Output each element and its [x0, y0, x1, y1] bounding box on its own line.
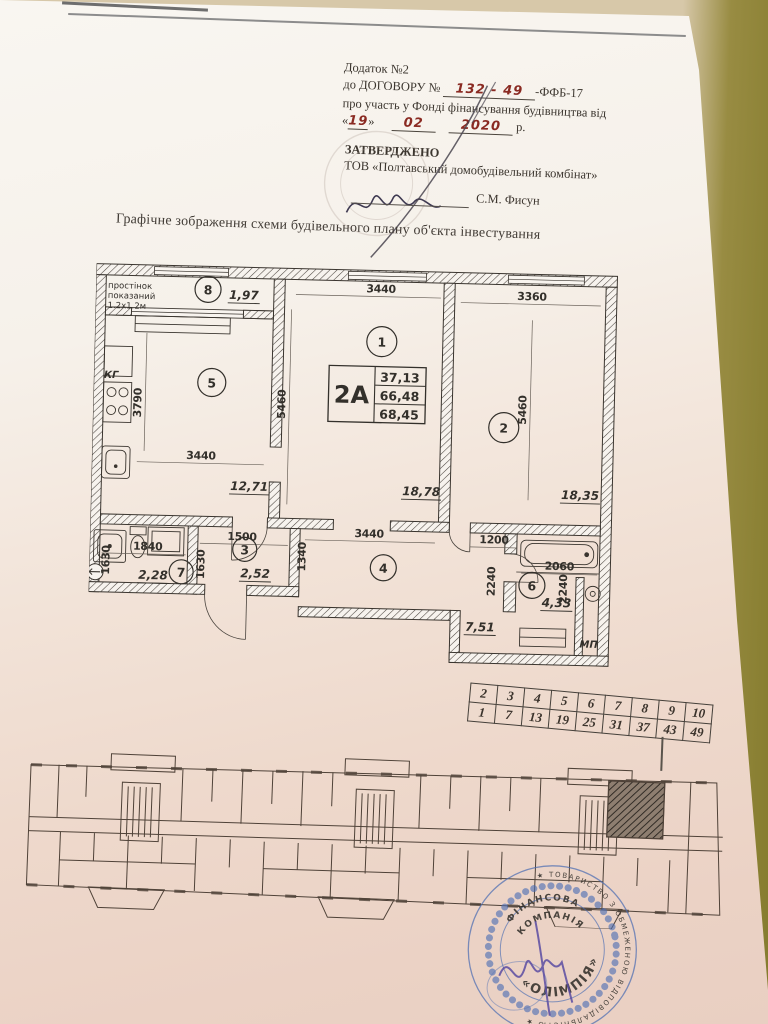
apartment-cell: 43 — [656, 719, 685, 740]
kg-label: КГ — [104, 370, 119, 381]
floor-cell: 8 — [631, 698, 660, 719]
dim-3440-top: 3440 — [366, 282, 396, 296]
note-line3: 1.2х1.2м — [107, 301, 146, 312]
room-4-area: 7,51 — [465, 620, 495, 635]
wall-corridor-bottom — [298, 607, 450, 621]
apartment-info-box: 2А 37,13 66,48 68,45 — [328, 365, 426, 423]
dim-1340: 1340 — [295, 541, 309, 571]
apartment-cell: 37 — [629, 717, 658, 738]
apartment-cell: 49 — [683, 722, 712, 743]
wall-bottom-right — [449, 652, 608, 666]
room-3-area: 2,52 — [240, 566, 270, 581]
floor-cell: 10 — [684, 703, 713, 724]
dim-1630-left: 1630 — [99, 544, 113, 574]
dim-3440-hall: 3440 — [354, 527, 384, 541]
wall-kitchen-living — [270, 279, 285, 447]
apartment-cell: 31 — [602, 714, 631, 735]
room-2-area: 18,35 — [561, 488, 599, 503]
apartment-floor-plan: 8 1 2 5 3 4 6 7 простінок показаний 1.2х… — [87, 250, 642, 677]
room-3-number: 3 — [240, 542, 249, 557]
dim-2240-left: 2240 — [485, 566, 499, 596]
dim-1500: 1500 — [227, 530, 257, 544]
wall-room1-room2 — [438, 283, 455, 530]
floor-cell: 4 — [523, 688, 552, 709]
floor-cell: 2 — [469, 683, 498, 704]
dim-5460-right: 5460 — [516, 395, 530, 425]
room-1-area: 18,78 — [402, 484, 440, 499]
area-total: 66,48 — [380, 388, 420, 404]
dim-3790: 3790 — [131, 387, 145, 417]
room-8-number: 8 — [204, 282, 213, 297]
wall-middle-band — [100, 514, 600, 536]
photo-of-document: Додаток №2 до ДОГОВОРУ № 132 - 49-ФФБ-17… — [0, 0, 768, 1024]
room-5-area: 12,71 — [230, 479, 268, 494]
room-7-number: 7 — [177, 565, 186, 580]
room-8-area: 1,97 — [229, 288, 260, 303]
apartment-cell: 25 — [575, 712, 604, 733]
room-7-area: 2,28 — [138, 568, 168, 583]
dim-1630-mid: 1630 — [194, 549, 208, 579]
year-suffix: р. — [516, 120, 526, 134]
contract-suffix: -ФФБ-17 — [535, 85, 583, 101]
floor-cell: 9 — [657, 700, 686, 721]
room-6-number: 6 — [527, 578, 536, 593]
dim-3440-kitchen: 3440 — [186, 449, 216, 463]
room-6-area: 4,33 — [541, 596, 572, 611]
dim-1840: 1840 — [133, 540, 163, 554]
room-4-number: 4 — [379, 561, 388, 576]
dim-2060: 2060 — [545, 560, 575, 574]
area-living: 37,13 — [380, 370, 420, 386]
company-stamp: ★ ТОВАРИСТВО З ОБМЕЖЕНОЮ ВІДПОВІДАЛЬНІСТ… — [459, 856, 646, 1024]
apartment-cell: 19 — [548, 709, 577, 730]
floor-cell: 6 — [577, 693, 606, 714]
dim-3360-top: 3360 — [517, 290, 547, 304]
apartment-cell: 13 — [521, 707, 550, 728]
room-5-number: 5 — [207, 375, 216, 390]
mp-label: МП — [579, 640, 598, 651]
signer-name: С.М. Фисун — [476, 191, 540, 208]
wall-bath-lower — [503, 582, 516, 612]
apartment-selector-table: 2345678910 1713192531374349 — [467, 682, 714, 743]
apartment-code: 2А — [334, 380, 370, 409]
wall-bottom-entry — [247, 585, 299, 596]
wall-bottom-left — [89, 582, 205, 595]
apartment-cell: 1 — [468, 702, 497, 723]
apartment-cell: 7 — [494, 704, 523, 725]
room-1-number: 1 — [377, 335, 386, 350]
wall-right — [597, 287, 617, 666]
dim-5460-left: 5460 — [275, 389, 289, 419]
dim-1200: 1200 — [479, 533, 509, 547]
room-2-number: 2 — [499, 421, 508, 436]
floor-cell: 5 — [550, 690, 579, 711]
floor-cell: 3 — [496, 685, 525, 706]
highlighted-apartment — [607, 781, 665, 839]
document-content: Додаток №2 до ДОГОВОРУ № 132 - 49-ФФБ-17… — [0, 10, 768, 1024]
area-full: 68,45 — [379, 407, 419, 423]
room-number-circles — [169, 276, 553, 599]
floor-cell: 7 — [604, 695, 633, 716]
